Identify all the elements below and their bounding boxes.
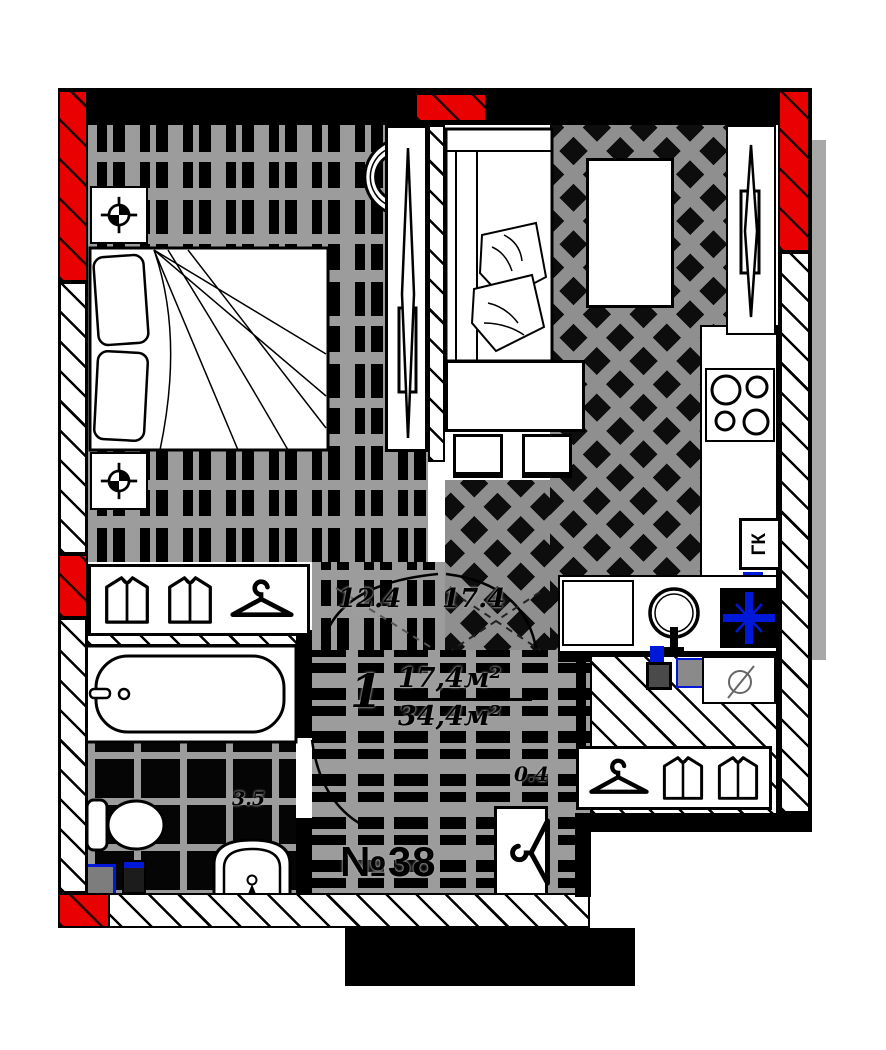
gas-boiler-label: ГК [749, 533, 771, 555]
red-wall-bottom-left [58, 893, 110, 928]
sliding-door-icon [388, 128, 425, 449]
armchair [328, 134, 392, 220]
nightstand-bottom [90, 452, 148, 510]
exterior-shadow-right [812, 140, 826, 660]
washbasin [210, 836, 294, 897]
stool-left [453, 434, 503, 478]
red-wall-right-top [778, 90, 810, 252]
red-wall-left-mid [58, 554, 88, 618]
shirt-icon [661, 754, 705, 802]
survey-target-icon [99, 195, 139, 235]
entry-dimension-label: 0.4 [514, 762, 549, 786]
step-wall-vertical [575, 832, 591, 897]
stool-right [522, 434, 572, 478]
hall-cabinet [702, 656, 776, 704]
bedroom-wardrobe-strip [88, 564, 310, 636]
shirt-icon [166, 574, 214, 626]
bathroom-right-wall-upper [296, 636, 312, 738]
washer-hookup-gray [676, 658, 704, 688]
shirt-icon [716, 754, 760, 802]
living-area-total-label: 17,4м² [398, 663, 501, 694]
bedroom-living-partition [428, 125, 445, 462]
bottom-wall [58, 893, 590, 928]
gas-boiler: ГК [739, 518, 781, 570]
survey-target-icon [99, 461, 139, 501]
toilet-icon [84, 795, 168, 855]
bed [88, 246, 330, 452]
nightstand-top [90, 186, 148, 244]
apartment-number-label: №38 [340, 838, 437, 886]
water-point-blue [650, 646, 664, 662]
washer-hookup-dark [646, 662, 672, 690]
washbasin-icon [210, 836, 294, 897]
stair-landing-block [345, 928, 635, 986]
bedroom-area-label: 12.4 [338, 584, 401, 614]
bathtub [84, 644, 298, 744]
hanger-icon [588, 757, 650, 799]
entry-closet [494, 806, 548, 897]
window-radiator-strip [726, 125, 776, 335]
corridor-right-wall [576, 655, 586, 750]
sofa [444, 127, 554, 363]
living-room-rug-lower [445, 480, 550, 655]
left-wall-hatch-lower [59, 618, 87, 893]
step-wall-horizontal [575, 813, 812, 832]
coffee-table [586, 158, 674, 308]
rooms-count-label: 1 [350, 664, 382, 718]
red-wall-top-center [415, 93, 487, 122]
stove [705, 368, 775, 442]
total-area-label: 34,4м² [398, 701, 501, 732]
stove-burners-icon [707, 370, 773, 440]
toilet [84, 795, 168, 855]
sliding-door-icon [728, 127, 774, 333]
bedroom-wardrobe [385, 125, 428, 452]
vent-shaft [720, 588, 778, 648]
washing-machine [84, 864, 116, 896]
bathroom-right-wall-lower [296, 818, 312, 897]
water-riser [122, 860, 146, 894]
hanger-icon [229, 578, 295, 622]
dining-table [445, 360, 585, 432]
bathtub-icon [84, 644, 298, 744]
vent-cross-icon [720, 588, 778, 648]
kitchen-cabinet [562, 580, 634, 646]
red-wall-left-upper [58, 90, 88, 282]
shirt-icon [103, 574, 151, 626]
hall-wardrobe [576, 746, 772, 810]
bathroom-area-label: 3.5 [232, 788, 265, 810]
living-area-label: 17.4 [442, 584, 505, 614]
hanger-icon [510, 817, 554, 887]
right-wall-hatch [780, 252, 810, 813]
floor-plan: ГК [0, 0, 886, 1050]
cabinet-door-glyph [704, 658, 774, 702]
left-wall-hatch-upper [59, 282, 87, 554]
